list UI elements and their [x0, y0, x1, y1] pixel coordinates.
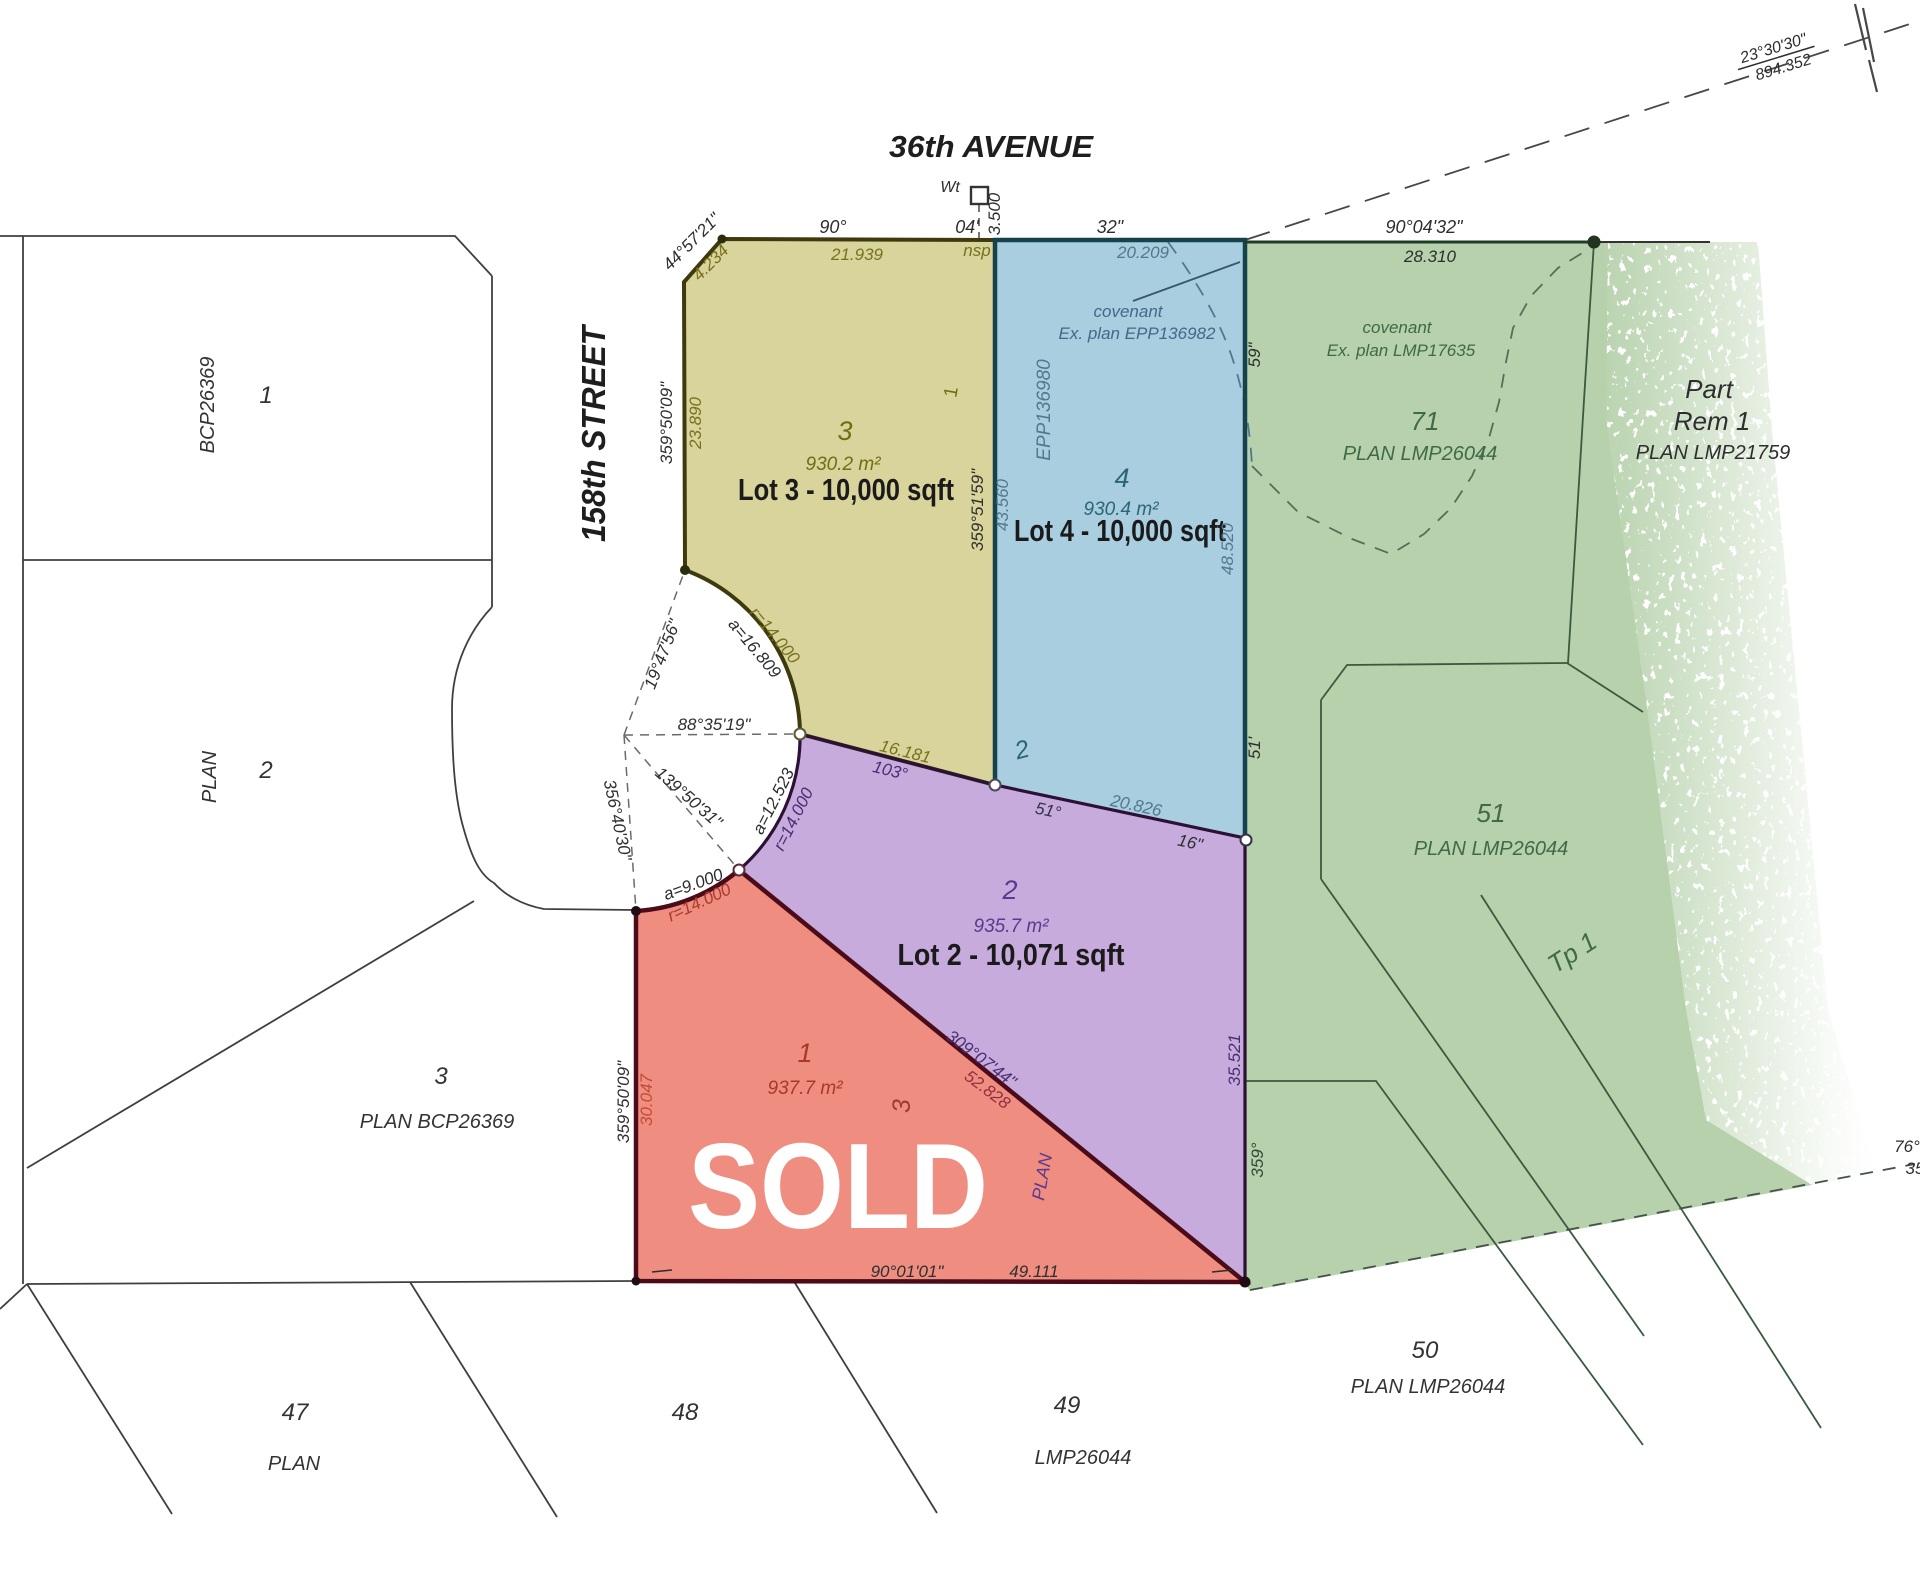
svg-text:935.7 m²: 935.7 m²	[974, 916, 1050, 937]
svg-text:47: 47	[282, 1399, 310, 1426]
svg-text:23.890: 23.890	[686, 396, 705, 450]
svg-text:Ex. plan EPP136982: Ex. plan EPP136982	[1059, 324, 1216, 343]
svg-text:nsp: nsp	[963, 241, 990, 260]
svg-text:3: 3	[434, 1063, 448, 1090]
svg-text:PLAN: PLAN	[199, 750, 221, 803]
svg-text:158th STREET: 158th STREET	[575, 323, 612, 542]
svg-text:50: 50	[1412, 1337, 1439, 1364]
svg-text:04': 04'	[955, 217, 979, 237]
svg-text:51': 51'	[1245, 736, 1264, 759]
svg-text:PLAN LMP26044: PLAN LMP26044	[1343, 443, 1498, 465]
svg-text:4: 4	[1114, 463, 1129, 493]
svg-text:2: 2	[258, 757, 272, 784]
svg-text:Ex. plan LMP17635: Ex. plan LMP17635	[1327, 341, 1476, 360]
svg-text:3: 3	[888, 1099, 916, 1113]
svg-text:20.209: 20.209	[1116, 243, 1170, 262]
svg-text:LMP26044: LMP26044	[1035, 1447, 1132, 1469]
svg-text:88°35'19": 88°35'19"	[678, 715, 752, 734]
svg-text:51: 51	[1477, 798, 1506, 828]
svg-text:49: 49	[1054, 1392, 1081, 1419]
svg-text:PLAN LMP26044: PLAN LMP26044	[1414, 838, 1569, 860]
svg-text:49.111: 49.111	[1009, 1262, 1058, 1281]
svg-text:PLAN: PLAN	[268, 1453, 321, 1475]
svg-text:35: 35	[1906, 1159, 1920, 1178]
svg-text:30.047: 30.047	[637, 1073, 656, 1126]
svg-text:32": 32"	[1097, 217, 1125, 237]
svg-text:BCP26369: BCP26369	[197, 357, 219, 454]
svg-text:Rem 1: Rem 1	[1674, 406, 1751, 436]
svg-text:36th AVENUE: 36th AVENUE	[889, 129, 1094, 164]
svg-text:SOLD: SOLD	[688, 1118, 988, 1254]
svg-text:covenant: covenant	[1094, 302, 1164, 321]
svg-text:48.520: 48.520	[1218, 522, 1237, 575]
svg-text:Lot 3 - 10,000 sqft: Lot 3 - 10,000 sqft	[738, 472, 954, 507]
svg-text:3.500: 3.500	[985, 192, 1004, 235]
svg-text:937.7 m²: 937.7 m²	[768, 1078, 844, 1099]
svg-text:90°04'32": 90°04'32"	[1385, 217, 1464, 237]
svg-text:21.939: 21.939	[830, 245, 884, 264]
svg-text:PLAN LMP21759: PLAN LMP21759	[1636, 442, 1791, 464]
svg-text:PLAN BCP26369: PLAN BCP26369	[360, 1111, 515, 1133]
svg-text:359°50'09": 359°50'09"	[657, 381, 676, 464]
svg-text:90°01'01": 90°01'01"	[871, 1262, 945, 1281]
svg-text:359°51'59": 359°51'59"	[968, 468, 987, 551]
svg-text:1: 1	[259, 382, 272, 409]
svg-text:71: 71	[1411, 406, 1440, 436]
svg-text:EPP136980: EPP136980	[1034, 359, 1055, 461]
svg-text:359°: 359°	[1248, 1142, 1267, 1177]
svg-text:Part: Part	[1685, 374, 1734, 404]
svg-text:Lot 2 - 10,071 sqft: Lot 2 - 10,071 sqft	[898, 937, 1125, 972]
svg-text:PLAN LMP26044: PLAN LMP26044	[1351, 1376, 1506, 1398]
svg-text:76°: 76°	[1894, 1137, 1920, 1156]
svg-text:3: 3	[837, 416, 852, 446]
svg-text:43.560: 43.560	[993, 478, 1012, 531]
svg-text:Wt: Wt	[940, 179, 960, 196]
svg-text:59": 59"	[1245, 342, 1264, 368]
svg-text:Lot 4 - 10,000 sqft: Lot 4 - 10,000 sqft	[1014, 513, 1226, 548]
svg-text:90°: 90°	[819, 217, 846, 237]
svg-text:48: 48	[672, 1399, 699, 1426]
svg-text:2: 2	[1001, 875, 1017, 905]
svg-text:359°50'09": 359°50'09"	[614, 1060, 633, 1143]
svg-text:28.310: 28.310	[1403, 247, 1457, 266]
svg-text:1: 1	[797, 1038, 812, 1068]
svg-text:covenant: covenant	[1363, 318, 1433, 337]
svg-text:35.521: 35.521	[1225, 1034, 1244, 1086]
